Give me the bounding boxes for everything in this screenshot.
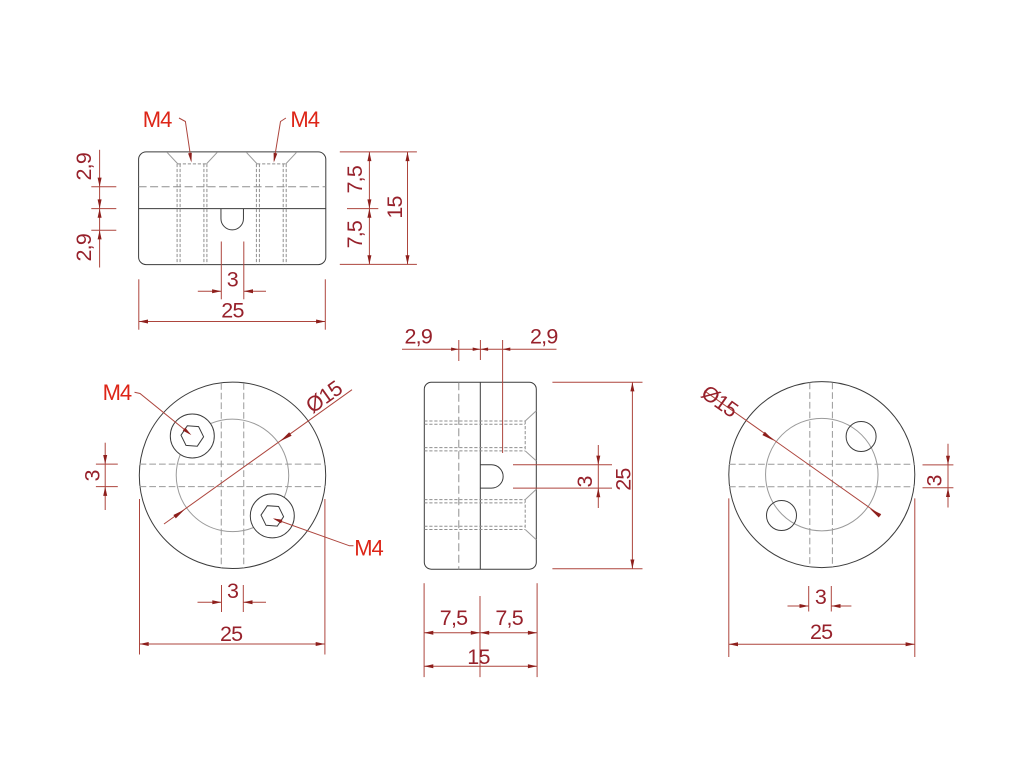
svg-text:2,9: 2,9 xyxy=(72,153,96,181)
svg-text:2,9: 2,9 xyxy=(72,234,96,262)
svg-text:25: 25 xyxy=(220,622,243,646)
svg-text:25: 25 xyxy=(612,468,636,491)
svg-text:3: 3 xyxy=(815,585,827,609)
svg-text:7,5: 7,5 xyxy=(440,606,468,630)
svg-text:2,9: 2,9 xyxy=(530,325,558,349)
svg-text:3: 3 xyxy=(923,475,947,487)
svg-text:15: 15 xyxy=(467,645,490,669)
svg-text:M4: M4 xyxy=(103,380,132,405)
svg-text:3: 3 xyxy=(573,476,597,488)
svg-text:7,5: 7,5 xyxy=(343,220,367,248)
svg-text:2,9: 2,9 xyxy=(405,325,433,349)
svg-text:15: 15 xyxy=(383,195,407,218)
svg-text:M4: M4 xyxy=(143,107,172,132)
svg-text:7,5: 7,5 xyxy=(343,165,367,193)
svg-text:25: 25 xyxy=(810,620,833,644)
svg-text:M4: M4 xyxy=(354,535,383,560)
svg-text:3: 3 xyxy=(81,470,105,482)
svg-text:3: 3 xyxy=(227,579,239,603)
svg-text:M4: M4 xyxy=(290,107,319,132)
svg-text:7,5: 7,5 xyxy=(495,606,523,630)
svg-text:25: 25 xyxy=(221,298,244,322)
svg-text:3: 3 xyxy=(227,268,239,292)
